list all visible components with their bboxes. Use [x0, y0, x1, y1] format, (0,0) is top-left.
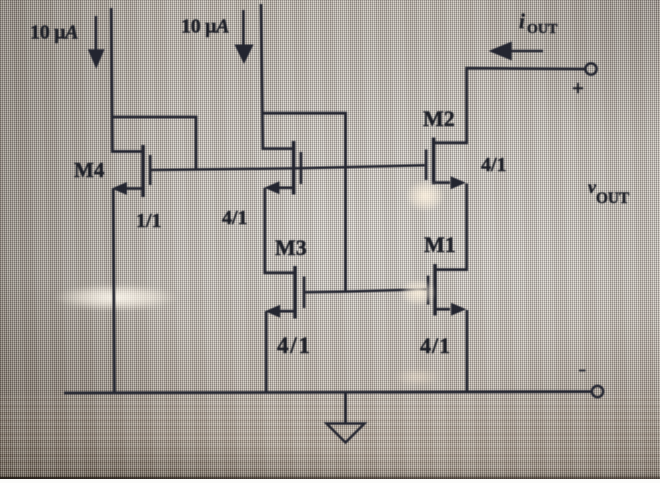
svg-text:M2: M2 [423, 106, 455, 131]
svg-text:M1: M1 [424, 232, 456, 257]
svg-text:4/1: 4/1 [277, 333, 312, 358]
svg-text:4/1: 4/1 [481, 154, 507, 176]
svg-text:+: + [572, 76, 584, 100]
svg-text:1/1: 1/1 [136, 210, 162, 232]
svg-text:4/1: 4/1 [420, 333, 451, 358]
svg-text:4/1: 4/1 [222, 207, 248, 229]
svg-text:10 μA: 10 μA [30, 22, 78, 44]
svg-text:M3: M3 [275, 235, 307, 260]
svg-text:OUT: OUT [596, 190, 629, 207]
svg-text:M4: M4 [74, 158, 105, 182]
svg-text:OUT: OUT [527, 22, 558, 37]
svg-text:10 μA: 10 μA [181, 16, 229, 38]
svg-text:i: i [519, 9, 525, 33]
